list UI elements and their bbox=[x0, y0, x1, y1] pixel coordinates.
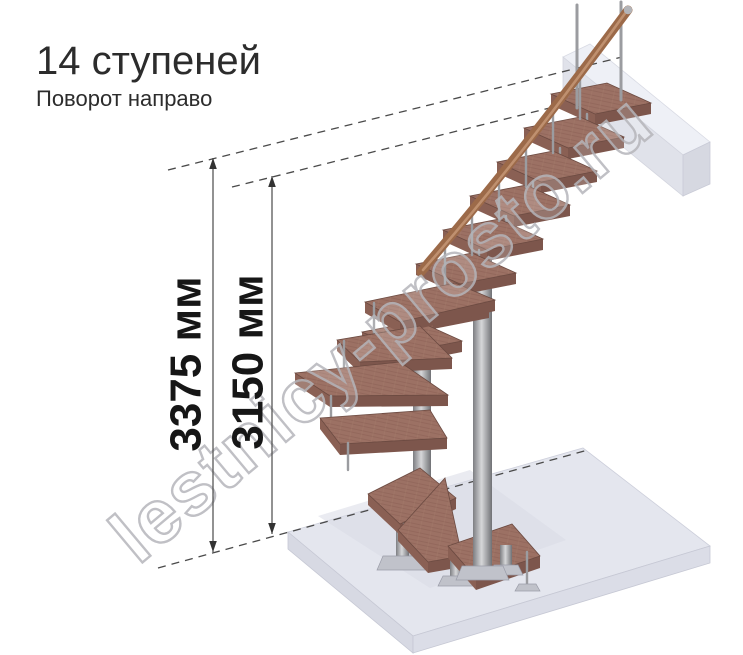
staircase-diagram-page: lestnicy-prosto.ru 3375 мм 3150 мм 14 ст… bbox=[0, 0, 743, 655]
page-subtitle: Поворот направо bbox=[36, 86, 212, 111]
dimension-label-to-platform: 3150 мм bbox=[224, 274, 273, 449]
dimension-label-overall: 3375 мм bbox=[162, 276, 211, 451]
staircase-illustration: lestnicy-prosto.ru 3375 мм 3150 мм 14 ст… bbox=[0, 0, 743, 655]
page-title: 14 ступеней bbox=[36, 39, 261, 83]
handrail-end-cap bbox=[624, 6, 632, 14]
